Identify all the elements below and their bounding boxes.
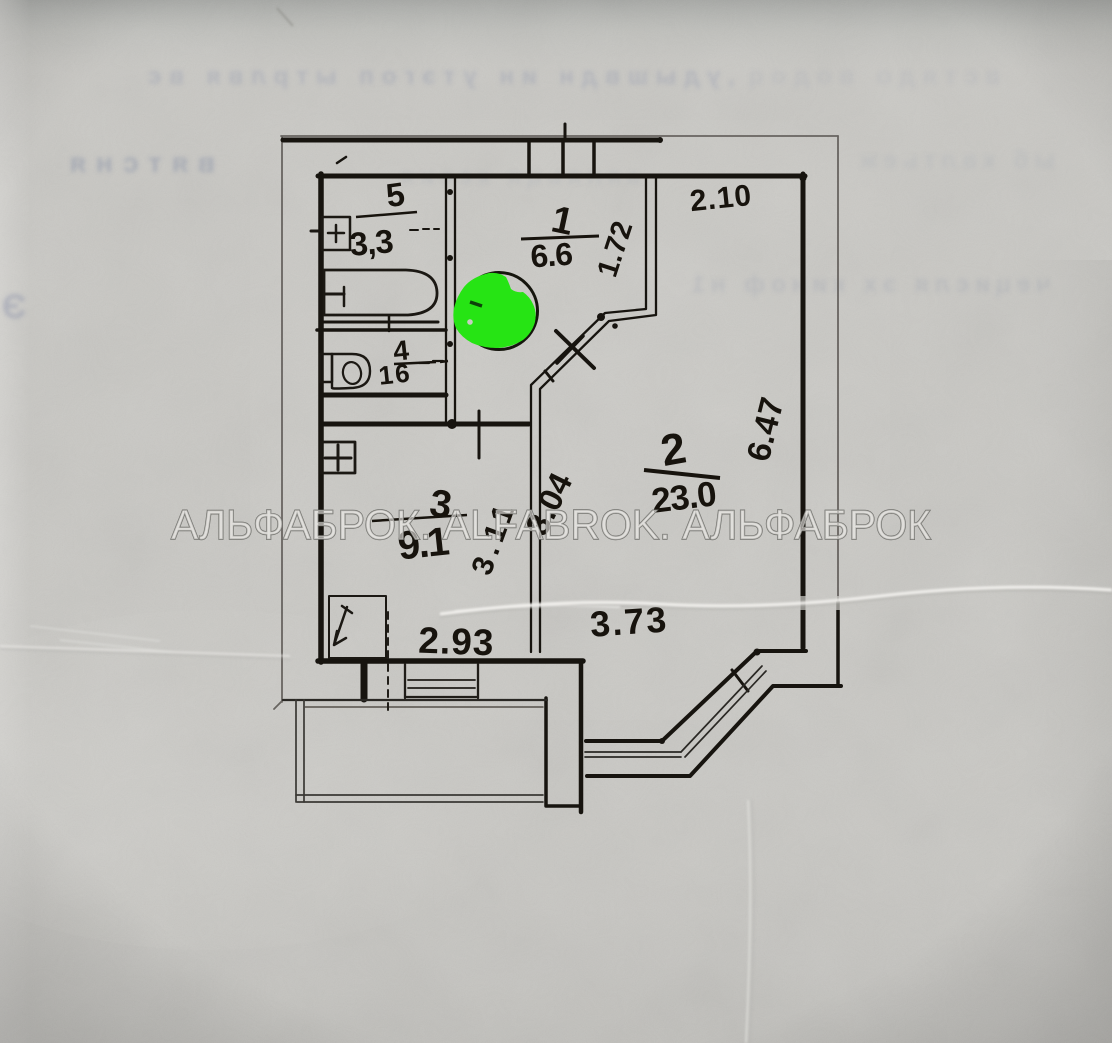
svg-text:3,3: 3,3: [348, 222, 395, 263]
svg-text:АЛЬФАБРОК. ALFABROK. АЛЬФАБРОК: АЛЬФАБРОК. ALFABROK. АЛЬФАБРОК: [171, 501, 932, 548]
svg-text:16: 16: [377, 357, 413, 390]
svg-text:2.10: 2.10: [688, 179, 753, 218]
svg-text:2.93: 2.93: [418, 620, 495, 664]
svg-text:6.6: 6.6: [529, 236, 573, 275]
